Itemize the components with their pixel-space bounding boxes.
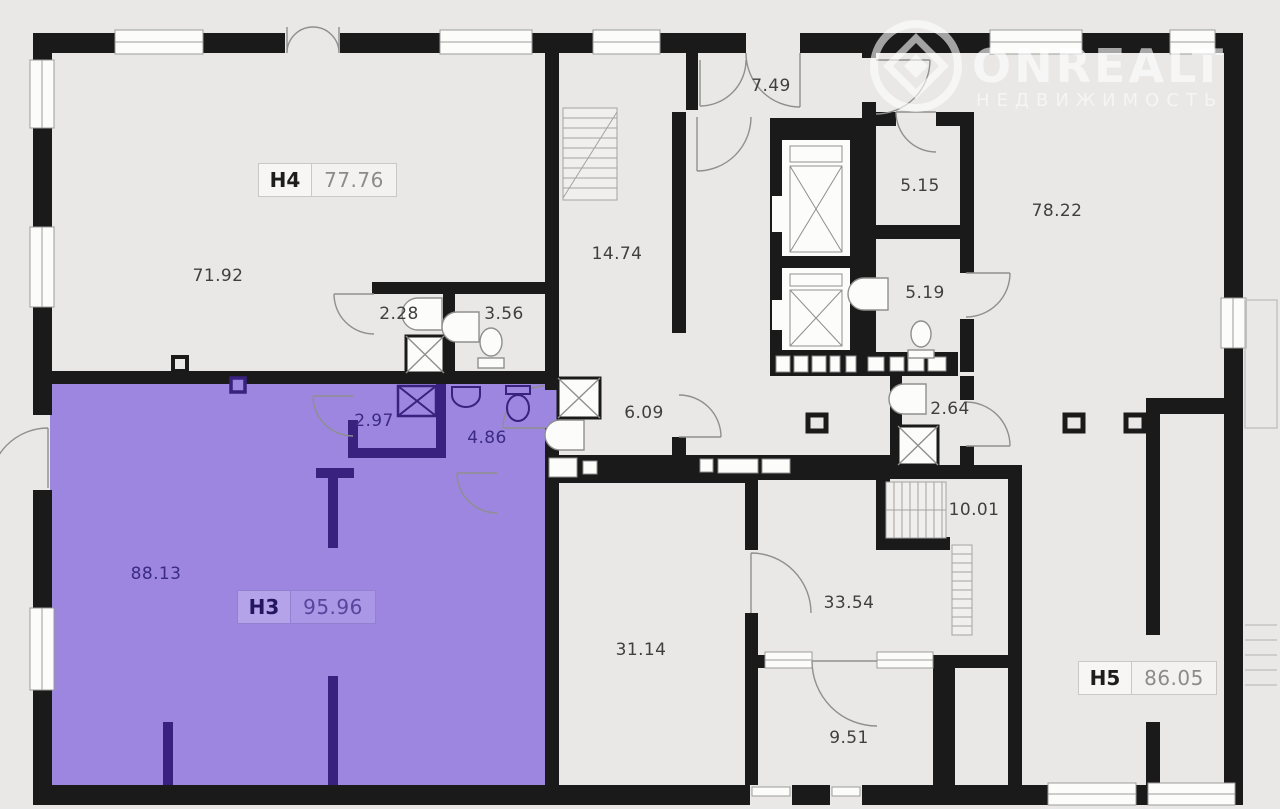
elevator-shafts: [772, 140, 850, 350]
unit-h3-floor: [50, 384, 559, 785]
sink-icon: [402, 298, 442, 330]
floor-plan-canvas: ONREALT НЕДВИЖИМОСТЬ 71.927.4914.742.283…: [0, 0, 1280, 809]
watermark-subtitle: НЕДВИЖИМОСТЬ: [976, 90, 1223, 111]
vent-shaft: [231, 378, 245, 392]
floor-plan-drawing: ONREALT НЕДВИЖИМОСТЬ: [0, 0, 1280, 809]
exterior-steps: [1245, 300, 1277, 685]
watermark-brand: ONREALT: [972, 39, 1226, 93]
stairs-main: [563, 108, 617, 200]
ladder: [952, 545, 972, 635]
stairs-10-01: [886, 482, 946, 538]
